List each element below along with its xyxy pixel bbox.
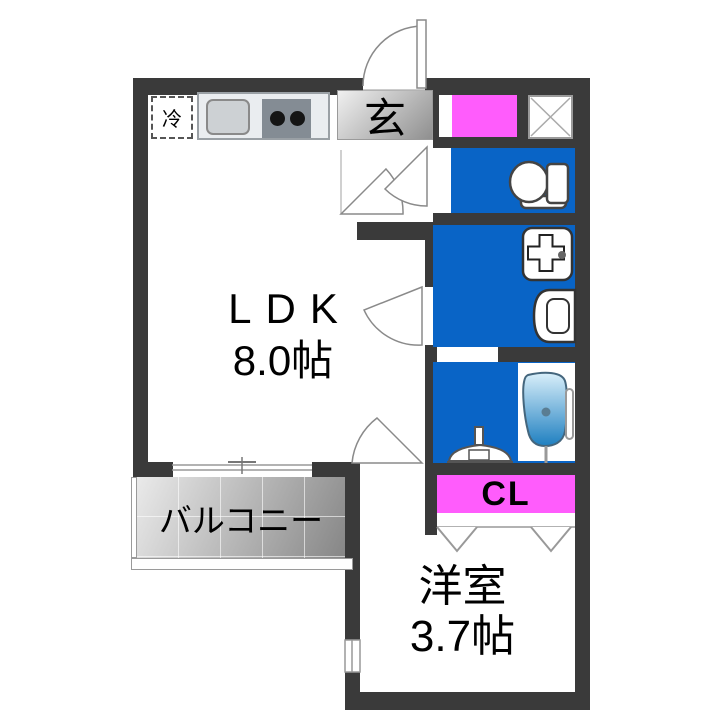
- bathtub-alcove: [518, 363, 575, 461]
- pipe-space-box: [528, 95, 573, 139]
- shoe-cabinet: [452, 95, 517, 137]
- wall-ldk-bottom-right: [312, 462, 360, 477]
- sliding-window-icon: [172, 457, 312, 474]
- entry-door-icon: [363, 20, 426, 90]
- ldk-label: LDK: [168, 286, 398, 332]
- stove-icon: [262, 99, 311, 138]
- entrance-label: 玄: [337, 90, 433, 140]
- sink-icon: [206, 99, 250, 135]
- hall-door-swing-icon: [341, 169, 403, 214]
- toilet-room: [451, 148, 575, 213]
- wall-western-room-left-lower: [345, 672, 360, 692]
- stove-burner-icon: [270, 111, 285, 126]
- western-room-door-swing-icon: [352, 418, 422, 463]
- floorplan: 玄 冷 LDK 8.0帖 洋室 3.7帖 バルコニー CL: [0, 0, 720, 720]
- wall-western-room-bottom: [345, 692, 590, 710]
- balcony-label: バルコニー: [137, 477, 345, 558]
- wall-washroom-bathroom: [498, 347, 575, 362]
- balcony-railing-bottom: [131, 558, 353, 570]
- wall-top-right: [425, 78, 590, 95]
- washroom-laundry-room: [433, 225, 575, 347]
- western-room-label: 洋室: [350, 558, 575, 606]
- western-room-size-label: 3.7帖: [350, 608, 575, 656]
- wall-ldk-bottom-left: [133, 462, 173, 477]
- wall-right: [575, 95, 590, 710]
- toilet-doorway-strip: [439, 95, 452, 137]
- closet-label: CL: [437, 475, 575, 513]
- ldk-size-label: 8.0帖: [168, 334, 398, 380]
- closet-folding-doors-icon: [437, 527, 575, 551]
- wall-hall-bottom: [357, 222, 437, 240]
- refrigerator-label: 冷: [151, 96, 193, 139]
- stove-burner-icon: [290, 111, 305, 126]
- wall-toilet-bottom: [433, 213, 575, 225]
- toilet-door-swing-icon: [385, 147, 427, 206]
- wall-left: [133, 95, 148, 477]
- wall-bathroom-bottom: [425, 463, 575, 475]
- wall-closet-left: [425, 475, 437, 535]
